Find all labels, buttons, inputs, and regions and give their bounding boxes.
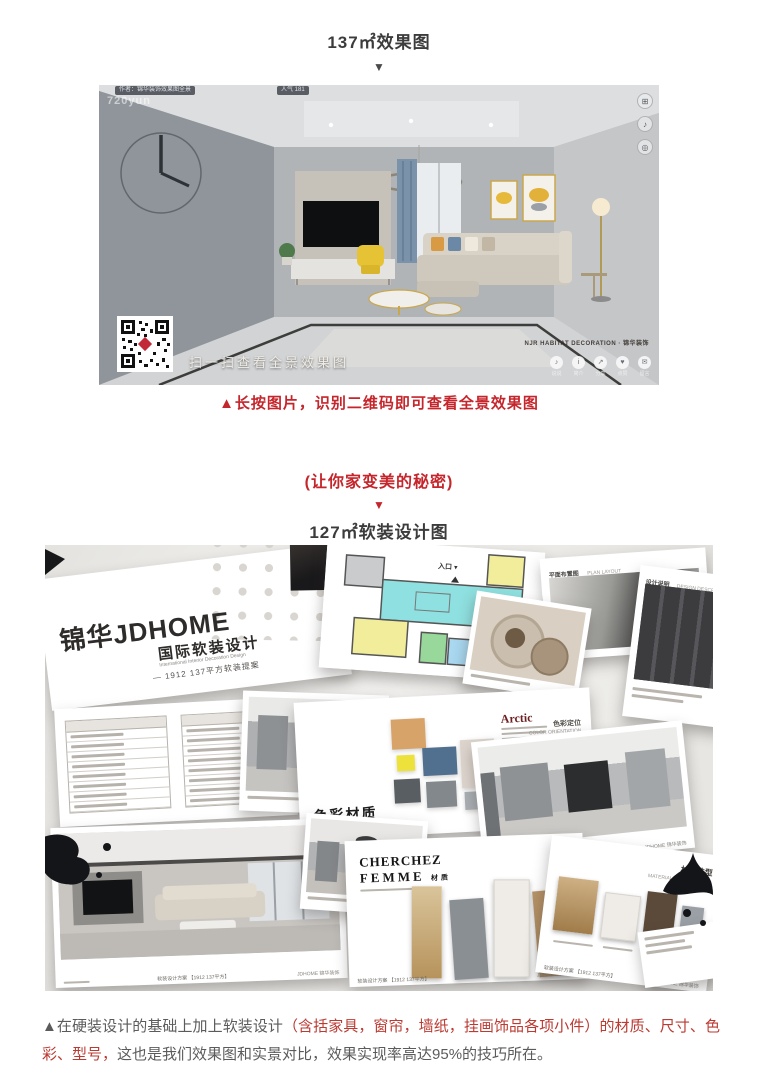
swatch-camel: [391, 718, 427, 750]
toolbar-say-button[interactable]: ♪ 说说: [550, 356, 563, 377]
share-icon: ↗: [594, 356, 607, 369]
material-chip-wood: [553, 876, 599, 934]
720yun-watermark: 720yun: [107, 95, 151, 107]
viewer-toolbar: ♪ 说说 i 简介 ↗ 分享 ♥ 点赞 ✉ 留言: [550, 356, 651, 377]
qr-caption: 扫一扫查看全景效果图: [189, 352, 349, 371]
material-strip-white: [494, 879, 530, 977]
tableware-card: [462, 591, 591, 702]
toolbar-share-button[interactable]: ↗ 分享: [594, 356, 607, 377]
cover-card: 锦华JDHOME 国际软装设计 International Interior D…: [45, 545, 352, 711]
viewer-corner-buttons: ⊞ ♪ ◎: [637, 93, 653, 155]
like-icon: ♥: [616, 356, 629, 369]
qr-instruction-caption: ▲长按图片，识别二维码即可查看全景效果图: [0, 392, 758, 413]
ink-splash-left: [45, 827, 129, 905]
small-corner-card: [637, 922, 713, 988]
down-arrow-red: ▼: [0, 498, 758, 512]
entrance-label: 入口 ▾: [438, 561, 458, 572]
comment-icon: ✉: [638, 356, 651, 369]
swatch-dark-gray: [394, 778, 421, 803]
info-icon: i: [572, 356, 585, 369]
furniture-table-left: [65, 715, 172, 813]
swatch-yellow: [396, 755, 415, 772]
soft-design-collage-image[interactable]: 锦华JDHOME 国际软装设计 International Interior D…: [45, 545, 713, 991]
material-strip-wood: [412, 886, 442, 978]
wardrobe-photo: [634, 584, 713, 691]
views-count: 人气 181: [277, 86, 309, 95]
swatch-slate-blue: [422, 746, 457, 776]
text-bar: [603, 946, 633, 952]
fullscreen-icon[interactable]: ⊞: [637, 93, 653, 109]
text-bar: [646, 945, 692, 954]
vr-icon[interactable]: ◎: [637, 139, 653, 155]
panorama-viewer-image[interactable]: 作者：锦华装饰效果图全景 人气 181 720yun ⊞ ♪ ◎ 扫一扫查: [99, 85, 659, 385]
hallway-photo: [477, 727, 686, 847]
brand-watermark: NJR HABITAT DECORATION · 锦华装饰: [525, 338, 650, 347]
text-bar: [644, 931, 694, 941]
footer-note: ▲在硬装设计的基础上加上软装设计（含括家具，窗帘，墙纸，挂画饰品各项小件）的材质…: [42, 1013, 720, 1069]
ink-splash-right: [657, 847, 713, 931]
note-gray-tail: 这也是我们效果图和实景对比，效果实现率高达95%的技巧所在。: [117, 1046, 552, 1063]
swatch-mid-gray: [426, 780, 457, 808]
secret-line: (让你家变美的秘密): [0, 468, 758, 492]
ink-wedge: [45, 549, 67, 575]
soft-section-title: 127㎡软装设计图: [0, 518, 758, 543]
down-arrow-dark: ▼: [0, 60, 758, 74]
author-label: 作者：锦华装饰效果图全景: [115, 86, 195, 95]
mic-icon: ♪: [550, 356, 563, 369]
card-footer: 软装设计方案 【1912 137平方】 JDHOME 锦华装饰: [56, 969, 348, 986]
text-bar: [553, 940, 593, 947]
toolbar-like-button[interactable]: ♥ 点赞: [616, 356, 629, 377]
toolbar-info-button[interactable]: i 简介: [572, 356, 585, 377]
tableware-photo: [470, 596, 586, 686]
note-gray-lead: ▲在硬装设计的基础上加上软装设计: [42, 1018, 283, 1035]
effect-section-title: 137㎡效果图: [0, 28, 758, 53]
material-chip-stone: [600, 892, 641, 942]
material-strip-fabric: [449, 898, 488, 980]
qr-code[interactable]: [117, 316, 173, 372]
toolbar-comment-button[interactable]: ✉ 留言: [638, 356, 651, 377]
audio-icon[interactable]: ♪: [637, 116, 653, 132]
